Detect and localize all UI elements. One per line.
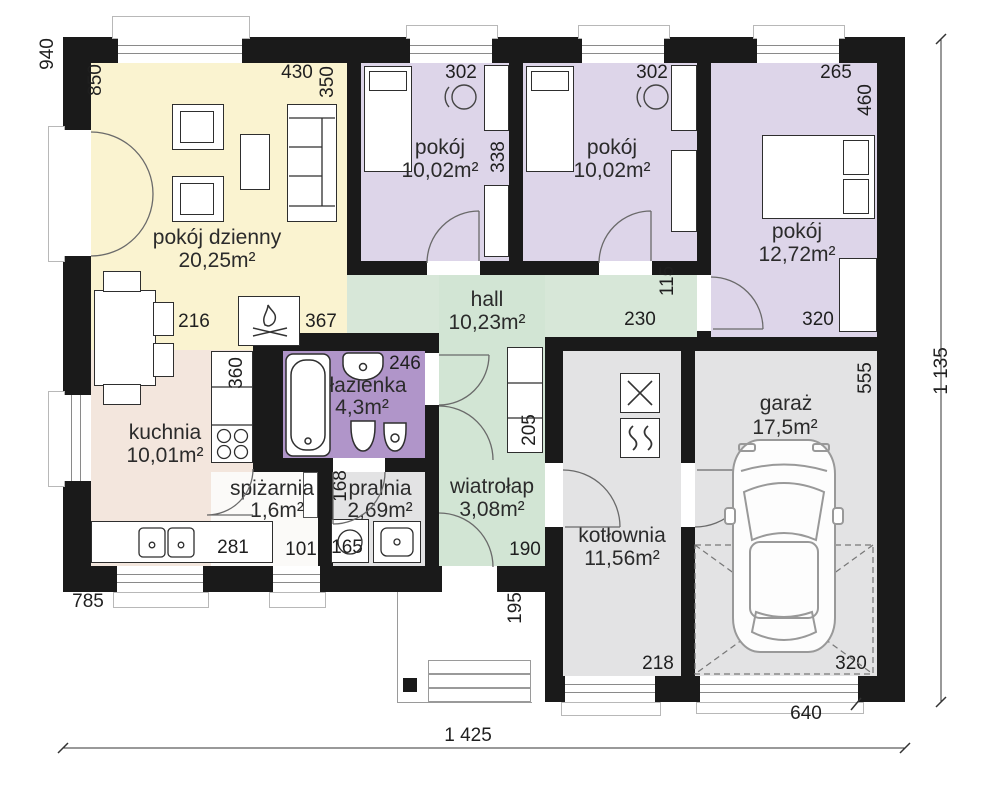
dim-302b: 302 bbox=[636, 62, 668, 84]
wardrobe bbox=[484, 65, 509, 131]
pillow bbox=[531, 71, 569, 91]
shelf bbox=[671, 150, 697, 232]
door-opening-entrance bbox=[442, 566, 497, 592]
wall-segment bbox=[347, 63, 361, 275]
armchair-seat bbox=[180, 111, 214, 143]
dim-230: 230 bbox=[624, 309, 656, 331]
dim-940: 940 bbox=[37, 38, 59, 70]
dim-165: 165 bbox=[331, 537, 363, 559]
dim-1135: 1 135 bbox=[931, 347, 953, 395]
dim-168: 168 bbox=[330, 470, 352, 502]
shelf bbox=[484, 185, 509, 257]
dim-180: 180 bbox=[290, 382, 312, 414]
chair bbox=[153, 343, 174, 377]
room-label-bedroom3: pokój bbox=[772, 220, 822, 244]
window-pantry-bottom bbox=[273, 566, 320, 592]
dim-218: 218 bbox=[642, 653, 674, 675]
dim-350: 350 bbox=[317, 66, 339, 98]
room-area-bathroom: 4,3m² bbox=[335, 396, 389, 420]
window-kitchen-left bbox=[63, 395, 91, 481]
room-label-bathroom: łazienka bbox=[329, 374, 406, 398]
window-bedroom1 bbox=[410, 37, 492, 63]
dining-table bbox=[94, 290, 156, 386]
dim-265: 265 bbox=[820, 62, 852, 84]
chair bbox=[103, 384, 141, 405]
chair bbox=[153, 302, 174, 336]
room-area-garage: 17,5m² bbox=[752, 416, 817, 440]
window-sill bbox=[269, 592, 326, 608]
dim-367: 367 bbox=[305, 311, 337, 333]
pillow bbox=[843, 140, 869, 175]
door-opening-boiler bbox=[545, 463, 563, 527]
room-area-hall: 10,23m² bbox=[448, 311, 525, 335]
room-label-bedroom2: pokój bbox=[587, 136, 637, 160]
door-opening-bedroom2 bbox=[599, 261, 652, 275]
wall-segment bbox=[877, 63, 905, 702]
sofa bbox=[287, 104, 337, 222]
wardrobe bbox=[671, 65, 697, 131]
porch-step bbox=[428, 660, 531, 674]
room-label-laundry: pralnia bbox=[348, 477, 411, 501]
room-label-bedroom1: pokój bbox=[415, 136, 465, 160]
garage-door bbox=[700, 676, 858, 702]
wall-segment bbox=[509, 63, 523, 261]
dim-360: 360 bbox=[226, 357, 248, 389]
room-label-garage: garaż bbox=[760, 392, 813, 416]
window-sill bbox=[113, 592, 209, 608]
dim-195: 195 bbox=[505, 592, 527, 624]
window-living bbox=[118, 37, 242, 63]
room-label-vestibule: wiatrołap bbox=[450, 475, 534, 499]
window-bedroom3 bbox=[757, 37, 839, 63]
chair bbox=[103, 271, 141, 292]
dim-320a: 320 bbox=[802, 309, 834, 331]
wardrobe bbox=[839, 258, 877, 332]
room-label-hall: hall bbox=[471, 288, 504, 312]
room-area-bedroom3: 12,72m² bbox=[758, 243, 835, 267]
dim-190: 190 bbox=[509, 539, 541, 561]
porch-step bbox=[428, 674, 531, 688]
room-label-living: pokój dzienny bbox=[153, 226, 281, 250]
dim-460: 460 bbox=[855, 84, 877, 116]
dim-430: 430 bbox=[281, 62, 313, 84]
window-boiler-bottom bbox=[565, 676, 655, 702]
armchair-seat bbox=[180, 183, 214, 215]
dim-320b: 320 bbox=[835, 653, 867, 675]
dim-281: 281 bbox=[217, 537, 249, 559]
wall-segment bbox=[697, 337, 879, 351]
room-label-boiler: kotłownia bbox=[578, 524, 666, 548]
dim-1425: 1 425 bbox=[444, 725, 492, 747]
room-hall-floor-a bbox=[347, 275, 439, 333]
room-area-laundry: 2,69m² bbox=[347, 499, 412, 523]
room-area-boiler: 11,56m² bbox=[584, 547, 659, 571]
wall-segment bbox=[545, 337, 697, 351]
flue-box bbox=[620, 373, 660, 413]
door-opening-garage bbox=[681, 463, 695, 527]
room-label-pantry: spiżarnia bbox=[230, 477, 314, 501]
pillow bbox=[369, 71, 407, 91]
room-label-kitchen: kuchnia bbox=[129, 421, 201, 445]
dim-850: 850 bbox=[85, 64, 107, 96]
dim-216: 216 bbox=[178, 311, 210, 333]
vent-box bbox=[620, 418, 660, 458]
fireplace bbox=[238, 296, 300, 346]
room-area-vestibule: 3,08m² bbox=[459, 498, 524, 522]
dim-785: 785 bbox=[72, 591, 104, 613]
dim-640: 640 bbox=[790, 703, 822, 725]
window-bedroom2 bbox=[582, 37, 664, 63]
dim-101: 101 bbox=[285, 539, 317, 561]
door-opening-bathroom bbox=[425, 353, 439, 405]
door-opening-terrace bbox=[63, 130, 91, 256]
laundry-counter bbox=[373, 521, 421, 563]
dim-205: 205 bbox=[519, 414, 541, 446]
room-area-living: 20,25m² bbox=[178, 249, 255, 273]
dim-555: 555 bbox=[855, 362, 877, 394]
coffee-table bbox=[240, 134, 270, 190]
floor-plan: pokój dzienny 20,25m² pokój 10,02m² pokó… bbox=[0, 0, 1000, 792]
dim-338: 338 bbox=[488, 141, 510, 173]
door-opening-bedroom1 bbox=[427, 261, 480, 275]
window-sill bbox=[696, 702, 864, 714]
dim-115: 115 bbox=[657, 266, 679, 296]
room-area-bedroom2: 10,02m² bbox=[573, 159, 650, 183]
window-sill bbox=[561, 702, 661, 716]
porch-pillar bbox=[403, 678, 417, 692]
door-opening-bedroom3 bbox=[697, 275, 711, 331]
pillow bbox=[843, 179, 869, 214]
porch-step bbox=[428, 688, 531, 702]
room-area-pantry: 1,6m² bbox=[250, 499, 304, 523]
dim-246: 246 bbox=[389, 353, 421, 375]
window-sill bbox=[112, 16, 250, 39]
wall-segment bbox=[697, 63, 711, 275]
wall-segment bbox=[253, 351, 283, 461]
room-area-bedroom1: 10,02m² bbox=[401, 159, 478, 183]
window-kitchen-bottom bbox=[117, 566, 203, 592]
dim-302a: 302 bbox=[445, 62, 477, 84]
room-area-kitchen: 10,01m² bbox=[126, 444, 203, 468]
